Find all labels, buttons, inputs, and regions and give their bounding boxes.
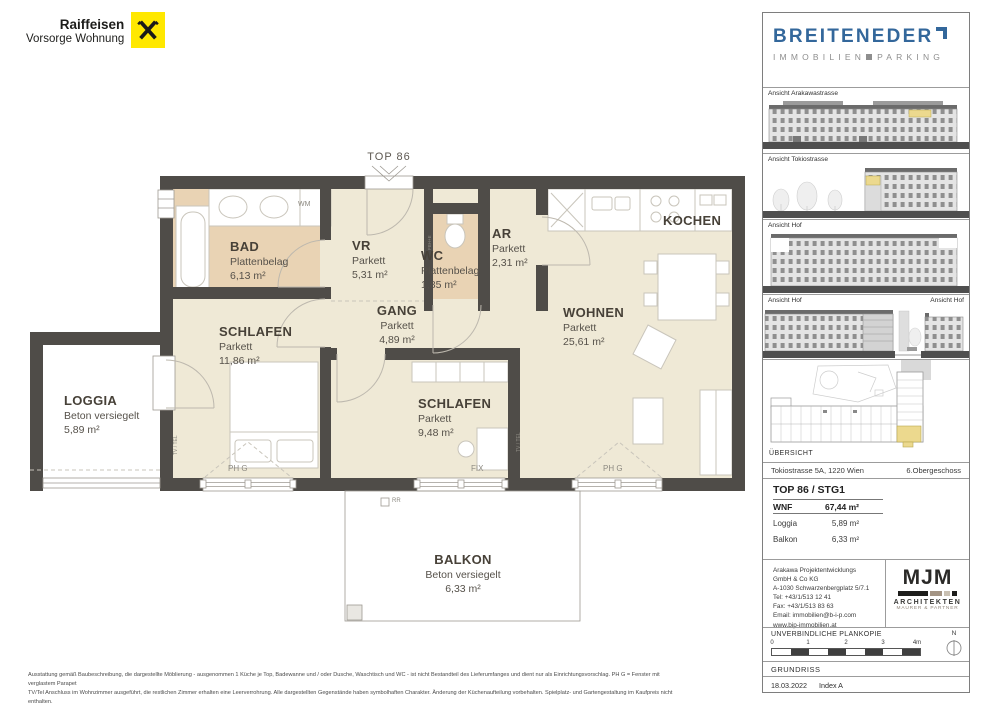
north-arrow-icon: N xyxy=(945,631,963,658)
washing-machine-label: WM xyxy=(298,201,310,208)
tv-tel-label-1: TV / TEL xyxy=(173,435,179,455)
elevation-arakawastrasse-image xyxy=(763,98,969,151)
unit-data-block: TOP 86 / STG1 WNF 67,44 m² Loggia 5,89 m… xyxy=(763,478,969,559)
area-row-loggia: Loggia 5,89 m² xyxy=(773,517,959,530)
elevation-tokiostrasse-image xyxy=(763,164,969,218)
elevation-hof-1-image xyxy=(763,230,969,293)
elevation-arakawastrasse: Ansicht Arakawastrasse xyxy=(763,87,969,153)
developer-contact: Arakawa Projektentwicklungs GmbH & Co KG… xyxy=(763,560,885,627)
title-block-sidebar: BREITENEDER IMMOBILIEN PARKING Ansicht A… xyxy=(762,12,970,693)
mjm-wordmark: MJM xyxy=(886,567,969,588)
plan-copy-section: UNVERBINDLICHE PLANKOPIE 0 1 2 3 4m N xyxy=(763,627,969,661)
tv-tel-label-2: TV / TEL xyxy=(516,432,522,452)
area-row-wnf: WNF 67,44 m² xyxy=(773,500,959,513)
room-label-gang: GANG Parkett 4,89 m² xyxy=(377,303,417,347)
window-ph-g-label-1: PH G xyxy=(228,464,248,473)
overview-label: ÜBERSICHT xyxy=(763,448,969,457)
project-address: Tokiostrasse 5A, 1220 Wien xyxy=(771,466,864,475)
plan-date: 18.03.2022 xyxy=(771,681,807,693)
breiteneder-corner-icon xyxy=(936,27,947,39)
window-ph-g-label-2: PH G xyxy=(603,464,623,473)
entry-label: TOP 86 xyxy=(367,151,411,163)
room-label-schlafen-2: SCHLAFEN Parkett 9,48 m² xyxy=(418,396,491,440)
plan-sheet: Raiffeisen Vorsorge Wohnung xyxy=(0,0,1000,707)
elevation-tokiostrasse: Ansicht Tokiostrasse xyxy=(763,153,969,219)
mjm-bar-icon xyxy=(886,591,969,596)
drawing-type-label: GRUNDRISS xyxy=(763,661,969,676)
date-row: 18.03.2022 Index A xyxy=(763,676,969,693)
room-label-loggia: LOGGIA Beton versiegelt 5,89 m² xyxy=(64,393,139,437)
site-plan-image xyxy=(763,360,969,448)
elevation-hof-2: Ansicht Hof Ansicht Hof xyxy=(763,294,969,359)
room-label-vr: VR Parkett 5,31 m² xyxy=(352,238,388,282)
breiteneder-wordmark: BREITENEDER xyxy=(773,26,933,47)
elevation-hof-2-image xyxy=(763,305,969,358)
breiteneder-subtitle: IMMOBILIEN PARKING xyxy=(773,52,961,62)
plan-copy-note: UNVERBINDLICHE PLANKOPIE xyxy=(771,631,961,638)
breiteneder-brand: BREITENEDER IMMOBILIEN PARKING xyxy=(763,13,969,87)
site-overview: ÜBERSICHT xyxy=(763,359,969,462)
rr-label: RR xyxy=(392,498,401,504)
room-label-wc: WC Plattenbelag 1,85 m² xyxy=(421,248,479,292)
room-label-kochen: KOCHEN xyxy=(663,213,721,230)
fine-print-line-1: Ausstattung gemäß Baubeschreibung, die d… xyxy=(28,671,678,689)
scale-ticks: 0 1 2 3 4m xyxy=(771,640,921,648)
fbh-label: FBH+E xyxy=(427,235,432,250)
room-label-schlafen-1: SCHLAFEN Parkett 11,86 m² xyxy=(219,324,292,368)
area-row-balkon: Balkon 6,33 m² xyxy=(773,533,959,546)
window-fix-label: FIX xyxy=(471,464,483,473)
contact-block: Arakawa Projektentwicklungs GmbH & Co KG… xyxy=(763,559,969,627)
legal-fine-print: Ausstattung gemäß Baubeschreibung, die d… xyxy=(28,671,678,707)
address-row: Tokiostrasse 5A, 1220 Wien 6.Obergeschos… xyxy=(763,462,969,478)
square-bullet-icon xyxy=(866,54,872,60)
room-label-balkon: BALKON Beton versiegelt 6,33 m² xyxy=(425,552,500,596)
room-label-bad: BAD Plattenbelag 6,13 m² xyxy=(230,239,288,283)
architects-logo: MJM ARCHITEKTEN MAURER & PARTNER xyxy=(885,560,969,627)
floor-level: 6.Obergeschoss xyxy=(906,466,961,475)
room-label-wohnen: WOHNEN Parkett 25,61 m² xyxy=(563,305,624,349)
room-label-ar: AR Parkett 2,31 m² xyxy=(492,226,528,270)
scale-bar-segments xyxy=(771,648,921,656)
unit-title: TOP 86 / STG1 xyxy=(773,484,959,496)
rule xyxy=(773,513,883,514)
fine-print-line-2: TV/Tel Anschluss im Wohnzimmer ausgeführ… xyxy=(28,689,678,707)
scale-bar: 0 1 2 3 4m xyxy=(771,640,941,656)
elevation-hof-1: Ansicht Hof xyxy=(763,219,969,294)
plan-index: Index A xyxy=(819,681,843,693)
